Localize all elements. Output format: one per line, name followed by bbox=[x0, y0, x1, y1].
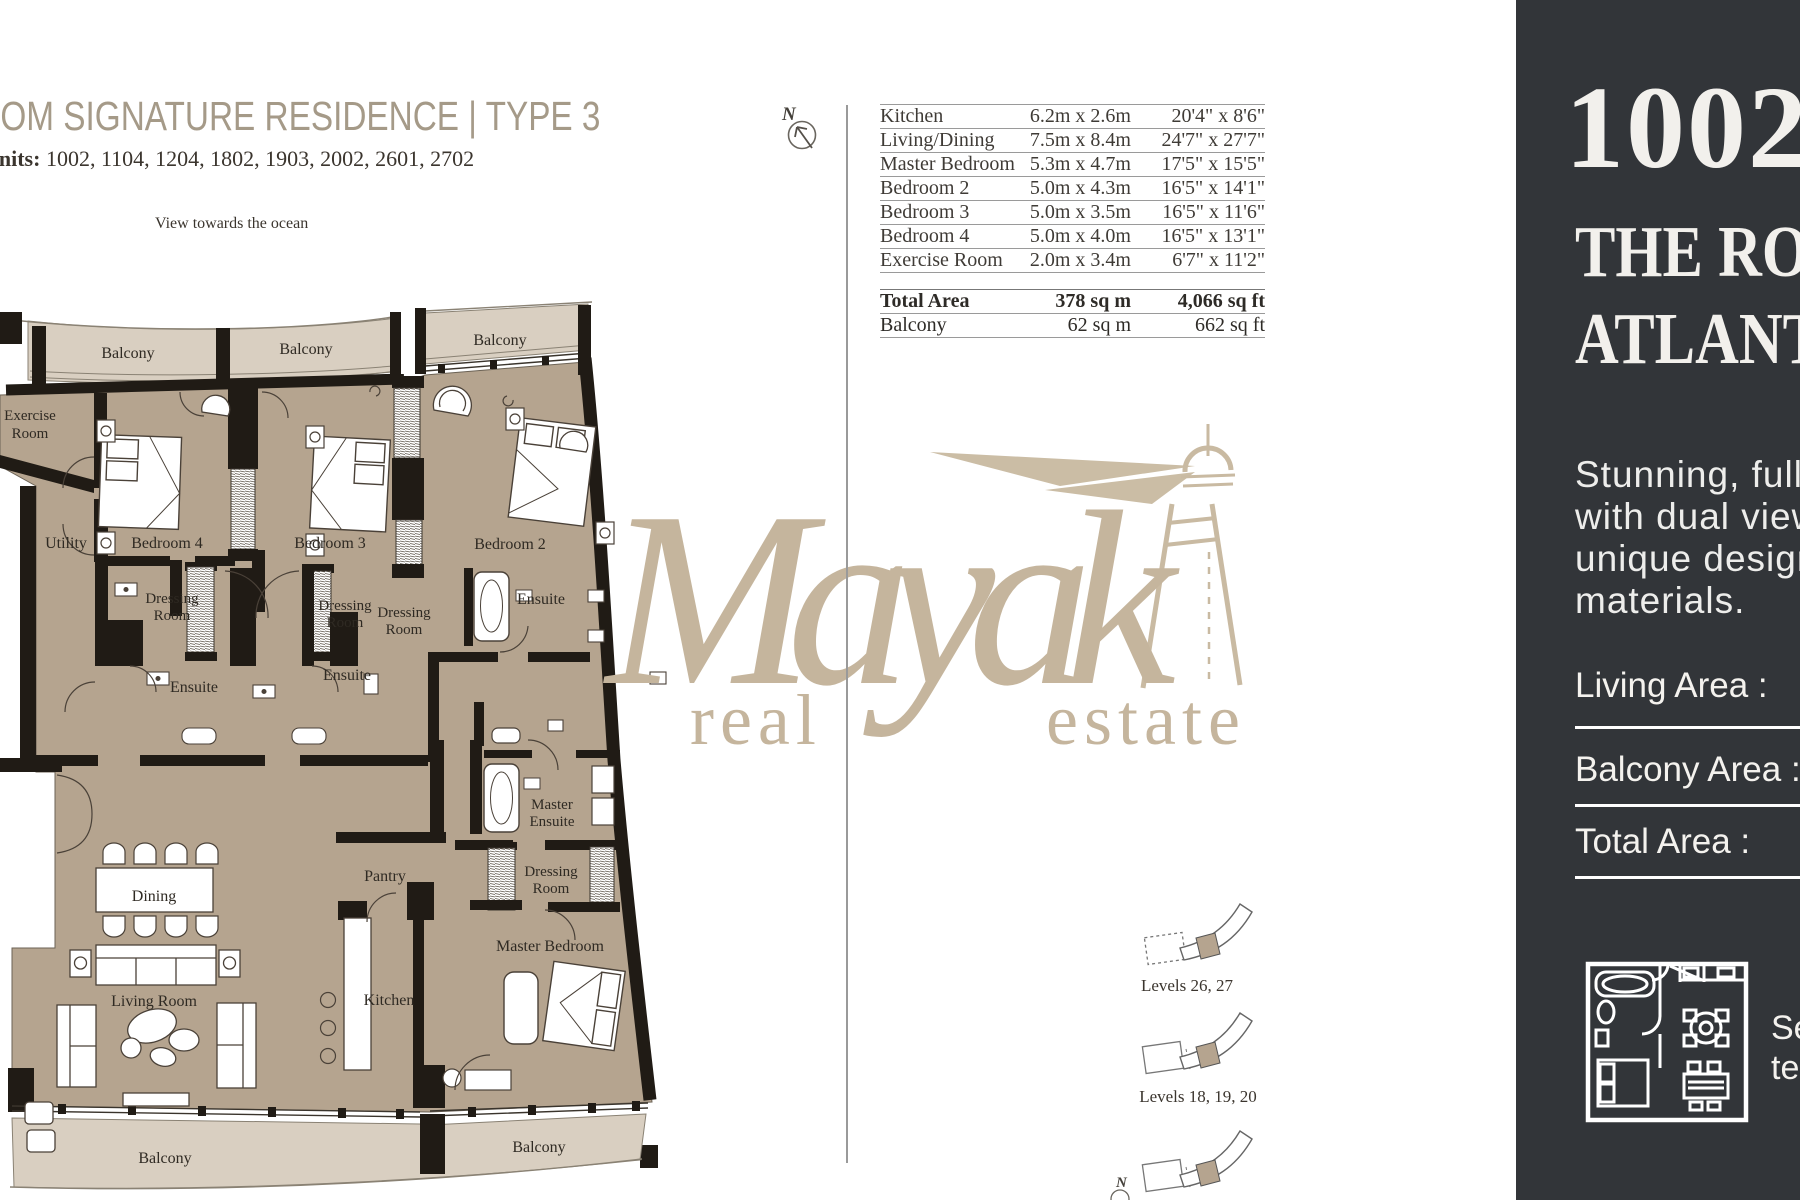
svg-text:Dressing: Dressing bbox=[318, 598, 372, 614]
svg-text:Dressing: Dressing bbox=[145, 591, 199, 607]
svg-text:Ensuite: Ensuite bbox=[170, 679, 218, 696]
svg-text:real: real bbox=[690, 680, 822, 760]
svg-text:Room: Room bbox=[154, 608, 191, 624]
svg-text:Room: Room bbox=[327, 615, 364, 631]
svg-text:Bedroom 3: Bedroom 3 bbox=[294, 535, 366, 552]
svg-text:Bedroom 2: Bedroom 2 bbox=[474, 536, 546, 553]
svg-text:estate: estate bbox=[1046, 680, 1246, 760]
svg-text:Ensuite: Ensuite bbox=[323, 667, 371, 684]
svg-text:Bedroom 4: Bedroom 4 bbox=[131, 535, 203, 552]
svg-text:N: N bbox=[781, 104, 797, 125]
svg-text:Dressing: Dressing bbox=[377, 605, 431, 621]
svg-text:Kitchen: Kitchen bbox=[364, 992, 415, 1009]
svg-text:Room: Room bbox=[12, 426, 49, 442]
svg-text:Pantry: Pantry bbox=[364, 868, 406, 885]
svg-text:Balcony: Balcony bbox=[512, 1139, 565, 1156]
svg-text:Dressing: Dressing bbox=[524, 864, 578, 880]
svg-text:Utility: Utility bbox=[45, 535, 87, 552]
svg-text:Room: Room bbox=[533, 881, 570, 897]
svg-text:Room: Room bbox=[386, 622, 423, 638]
svg-text:Master Bedroom: Master Bedroom bbox=[496, 938, 605, 955]
svg-text:Dining: Dining bbox=[132, 888, 176, 905]
svg-text:Balcony: Balcony bbox=[473, 332, 526, 349]
svg-text:Living Room: Living Room bbox=[111, 993, 197, 1010]
svg-text:Exercise: Exercise bbox=[4, 408, 56, 424]
svg-text:Balcony: Balcony bbox=[138, 1150, 191, 1167]
svg-text:Balcony: Balcony bbox=[101, 345, 154, 362]
svg-text:Balcony: Balcony bbox=[279, 341, 332, 358]
